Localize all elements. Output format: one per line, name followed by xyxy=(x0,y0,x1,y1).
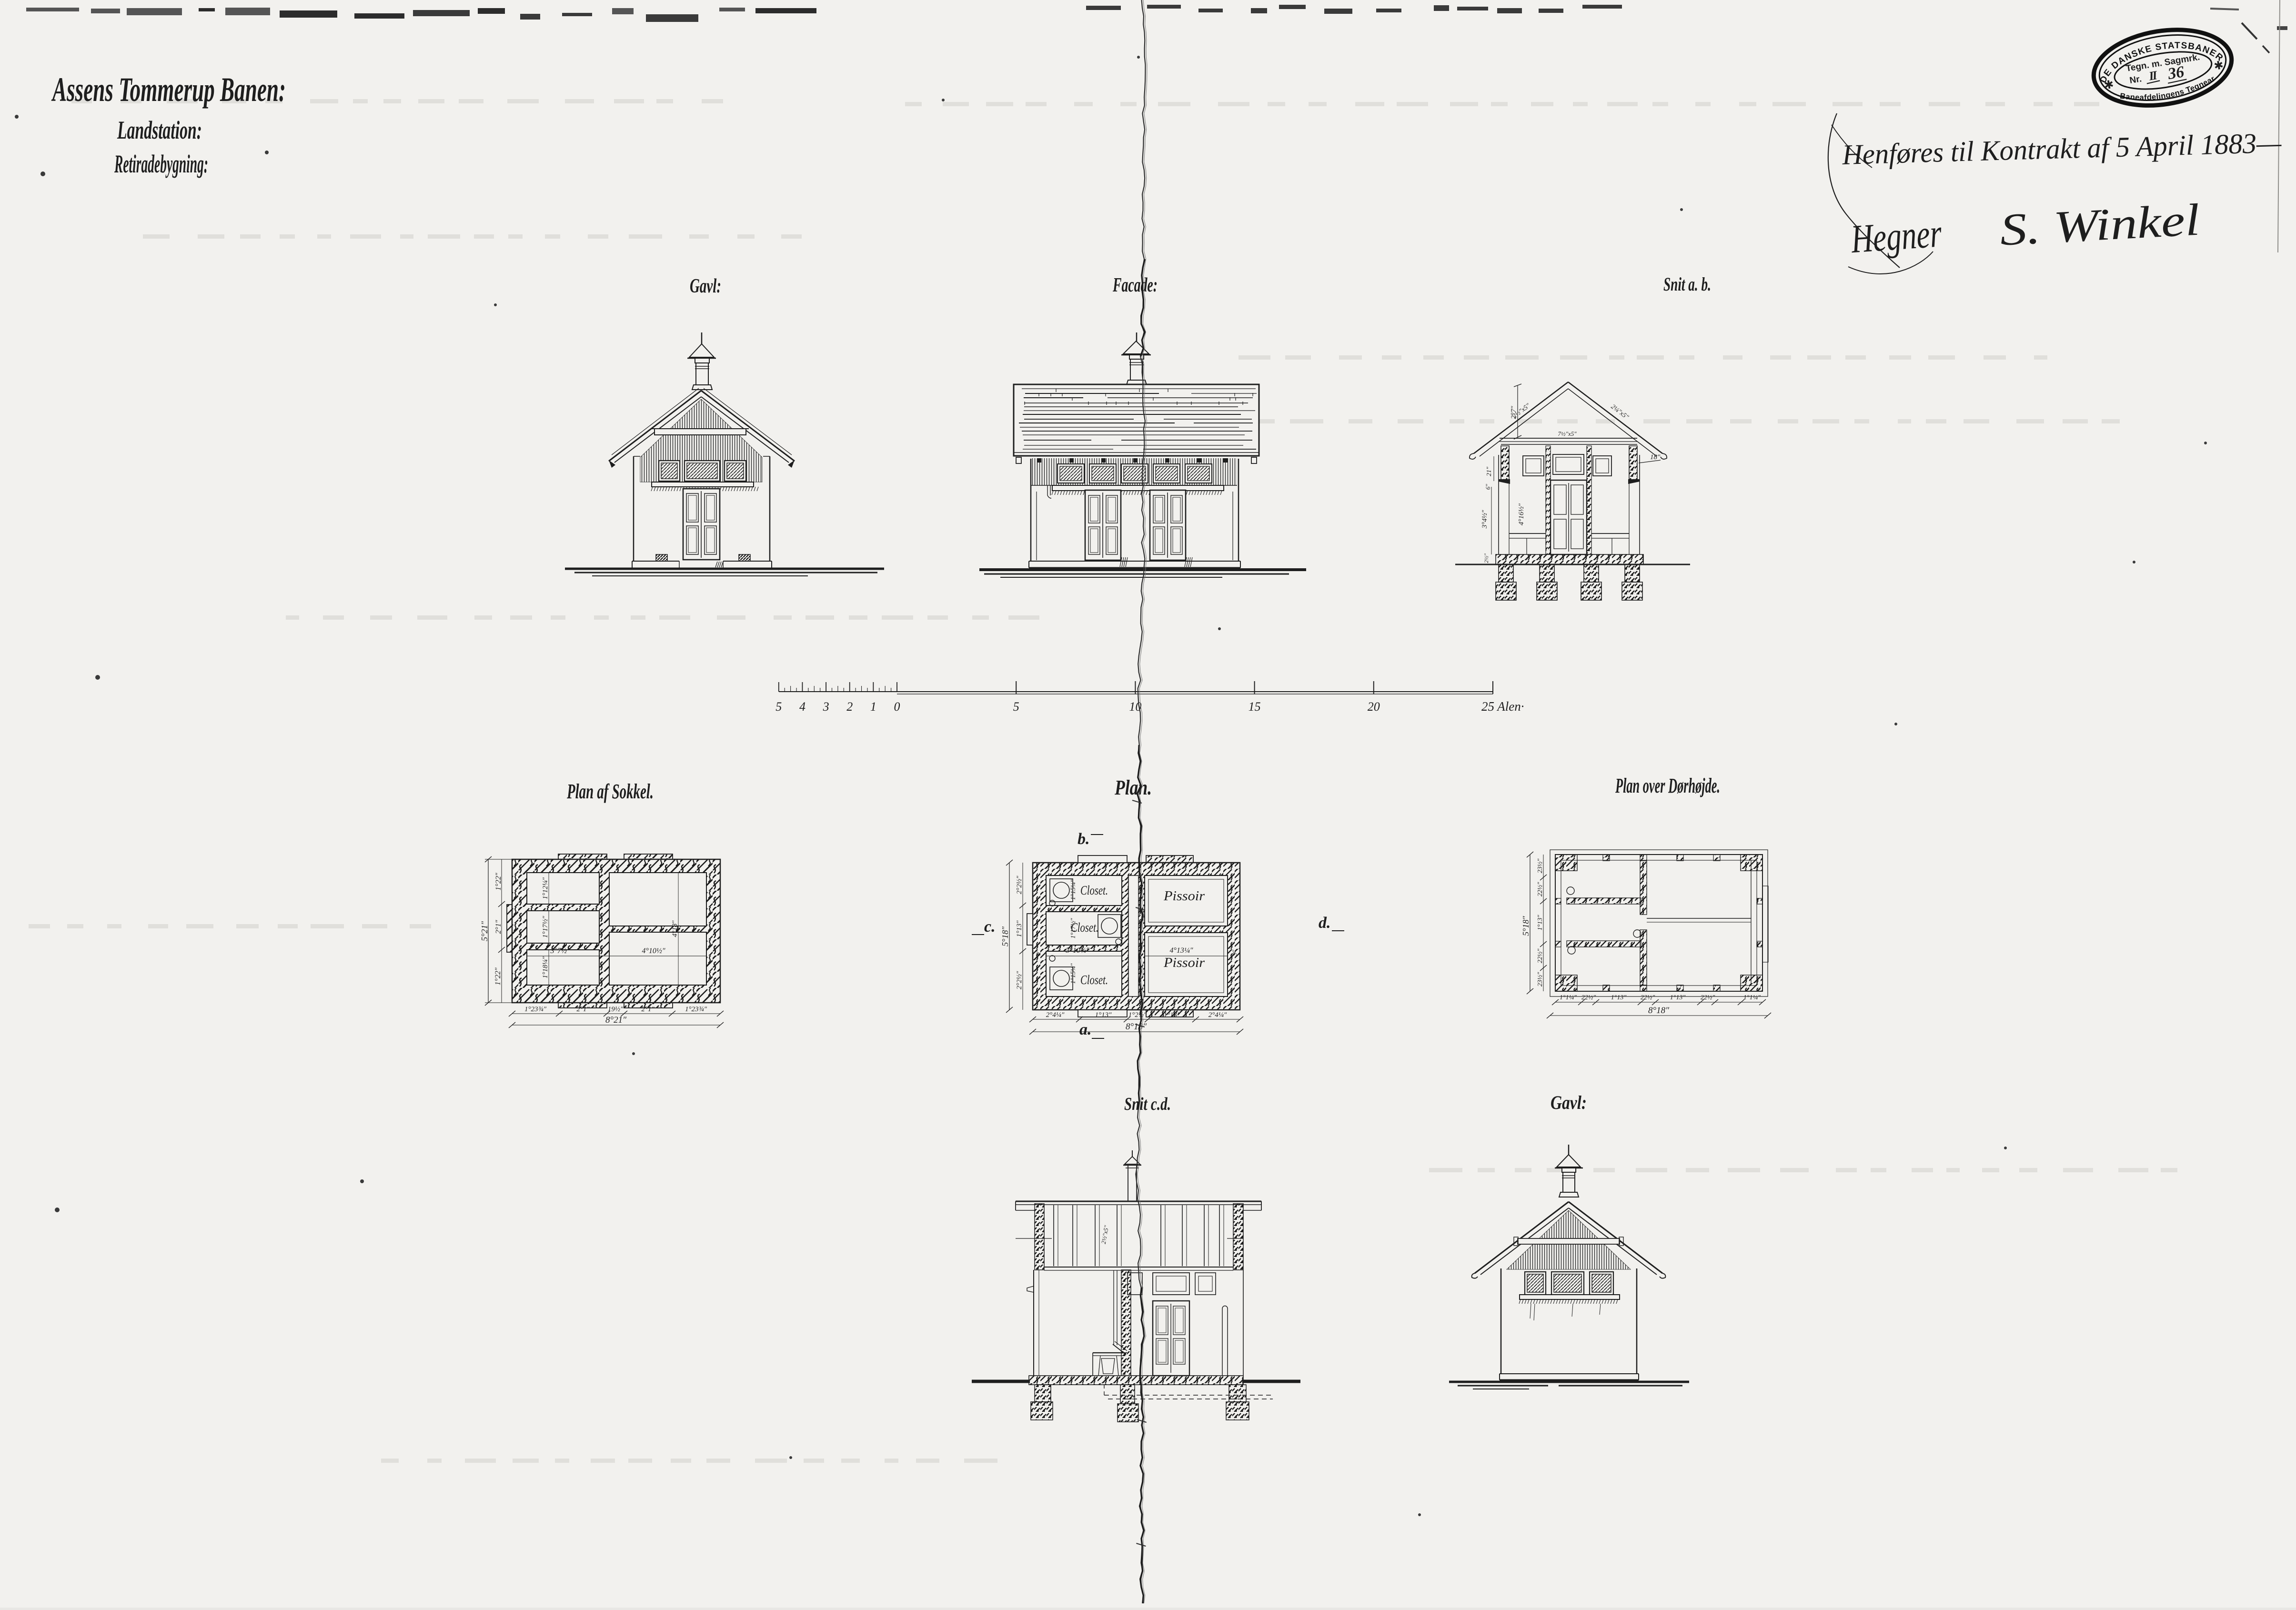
svg-text:22½″: 22½″ xyxy=(1537,949,1544,964)
svg-text:21″: 21″ xyxy=(1486,467,1493,476)
svg-text:Landstation:: Landstation: xyxy=(117,116,202,144)
svg-text:6″: 6″ xyxy=(1484,483,1491,490)
svg-text:c.: c. xyxy=(984,918,996,936)
svg-text:Facade:: Facade: xyxy=(1112,274,1158,296)
svg-text:Closet.: Closet. xyxy=(1080,883,1108,897)
svg-text:1°12¼″: 1°12¼″ xyxy=(542,877,549,899)
svg-text:1°22″: 1°22″ xyxy=(494,967,502,985)
svg-text:Snit a. b.: Snit a. b. xyxy=(1663,273,1711,295)
svg-text:1°17½″: 1°17½″ xyxy=(542,916,549,938)
svg-text:Pissoir: Pissoir xyxy=(1163,888,1205,904)
svg-text:22½″: 22½″ xyxy=(1701,994,1715,1001)
svg-text:23½″: 23½″ xyxy=(1537,972,1544,987)
svg-text:1°13″: 1°13″ xyxy=(1537,915,1544,931)
svg-text:4°16½″: 4°16½″ xyxy=(1518,503,1525,525)
svg-text:2°4¼″: 2°4¼″ xyxy=(1208,1011,1227,1019)
svg-text:2°2½″: 2°2½″ xyxy=(1016,875,1023,894)
svg-text:15: 15 xyxy=(1249,700,1261,714)
svg-text:4°10½″: 4°10½″ xyxy=(642,947,665,955)
svg-text:1°1¼″: 1°1¼″ xyxy=(1560,994,1577,1001)
svg-text:23½″: 23½″ xyxy=(1537,859,1544,874)
svg-text:22½″: 22½″ xyxy=(1581,994,1596,1001)
svg-text:1°13″: 1°13″ xyxy=(1016,920,1023,937)
svg-text:✱: ✱ xyxy=(2103,78,2115,92)
svg-text:d.: d. xyxy=(1319,914,1331,932)
svg-text:Closet.: Closet. xyxy=(1080,973,1108,987)
svg-text:1°13″: 1°13″ xyxy=(1670,994,1686,1001)
svg-text:2°1″: 2°1″ xyxy=(641,1006,655,1013)
svg-text:Hegner: Hegner xyxy=(1849,211,1943,262)
svg-text:Plan af Sokkel.: Plan af Sokkel. xyxy=(566,780,654,803)
svg-text:Plan over Dørhøjde.: Plan over Dørhøjde. xyxy=(1615,774,1720,797)
svg-text:25 Alen·: 25 Alen· xyxy=(1481,699,1524,714)
svg-text:2°1″: 2°1″ xyxy=(576,1006,590,1013)
svg-text:1°23¾″: 1°23¾″ xyxy=(524,1006,547,1013)
svg-text:4°18″: 4°18″ xyxy=(671,920,679,937)
svg-text:S. Winkel: S. Winkel xyxy=(1999,194,2201,255)
svg-text:3°4½″: 3°4½″ xyxy=(1481,510,1489,529)
svg-text:✱: ✱ xyxy=(2213,59,2225,73)
svg-text:4: 4 xyxy=(799,700,806,714)
svg-text:Snit c.d.: Snit c.d. xyxy=(1124,1094,1171,1114)
svg-text:0: 0 xyxy=(894,700,900,714)
svg-text:2°4¼″: 2°4¼″ xyxy=(1046,1011,1065,1019)
svg-text:Plan.: Plan. xyxy=(1114,776,1152,799)
svg-text:Retiradebygning:: Retiradebygning: xyxy=(114,150,208,178)
svg-text:19½″: 19½″ xyxy=(608,1006,624,1013)
svg-text:5: 5 xyxy=(1013,700,1019,714)
svg-text:9″: 9″ xyxy=(1035,949,1042,956)
svg-text:5°21″: 5°21″ xyxy=(480,921,489,941)
svg-text:1°15¼″: 1°15¼″ xyxy=(1070,963,1077,984)
svg-text:9″: 9″ xyxy=(1231,949,1238,956)
svg-text:b.: b. xyxy=(1078,830,1090,848)
svg-text:1°18¼″: 1°18¼″ xyxy=(542,956,549,978)
svg-text:4°13¼″: 4°13¼″ xyxy=(1169,946,1193,955)
svg-text:Nr.: Nr. xyxy=(2129,74,2142,86)
svg-text:1°13″: 1°13″ xyxy=(1164,1011,1180,1019)
svg-text:5: 5 xyxy=(775,700,782,714)
svg-text:1°13″: 1°13″ xyxy=(1095,1011,1112,1019)
svg-text:2½″: 2½″ xyxy=(1483,553,1490,563)
svg-text:Assens Tommerup Banen:: Assens Tommerup Banen: xyxy=(51,70,286,109)
svg-text:Gavl:: Gavl: xyxy=(690,275,721,297)
svg-text:8°21″: 8°21″ xyxy=(605,1015,627,1025)
svg-text:7½″x5″: 7½″x5″ xyxy=(1558,430,1577,437)
svg-text:a.: a. xyxy=(1079,1021,1092,1038)
svg-text:18″: 18″ xyxy=(1650,453,1661,461)
svg-text:1: 1 xyxy=(870,700,876,714)
svg-text:Pissoir: Pissoir xyxy=(1163,955,1205,970)
svg-text:8°18″: 8°18″ xyxy=(1648,1006,1670,1016)
svg-text:3°7½″: 3°7½″ xyxy=(550,947,570,955)
svg-text:1°2½″: 1°2½″ xyxy=(1128,1011,1147,1019)
svg-text:1°15¼″: 1°15¼″ xyxy=(1070,879,1077,900)
svg-text:3°10¼″: 3°10¼″ xyxy=(1065,946,1089,955)
svg-text:20: 20 xyxy=(1368,700,1380,714)
svg-text:5°18″: 5°18″ xyxy=(1521,916,1531,936)
svg-text:1°22″: 1°22″ xyxy=(494,873,503,890)
svg-text:3: 3 xyxy=(823,700,829,714)
svg-text:1°13″: 1°13″ xyxy=(1611,994,1627,1001)
svg-text:Gavl:: Gavl: xyxy=(1551,1092,1587,1113)
svg-text:1°17½″: 1°17½″ xyxy=(1070,918,1077,938)
svg-text:1°23¾″: 1°23¾″ xyxy=(685,1006,707,1013)
svg-text:2°2½″: 2°2½″ xyxy=(1016,971,1023,989)
svg-text:2: 2 xyxy=(846,700,853,714)
svg-text:5°18″: 5°18″ xyxy=(1000,926,1010,946)
svg-text:22½″: 22½″ xyxy=(1641,994,1655,1001)
svg-text:22½″: 22½″ xyxy=(1537,882,1544,897)
svg-text:1°1¼″: 1°1¼″ xyxy=(1743,994,1761,1001)
svg-text:2°1″: 2°1″ xyxy=(494,920,503,934)
